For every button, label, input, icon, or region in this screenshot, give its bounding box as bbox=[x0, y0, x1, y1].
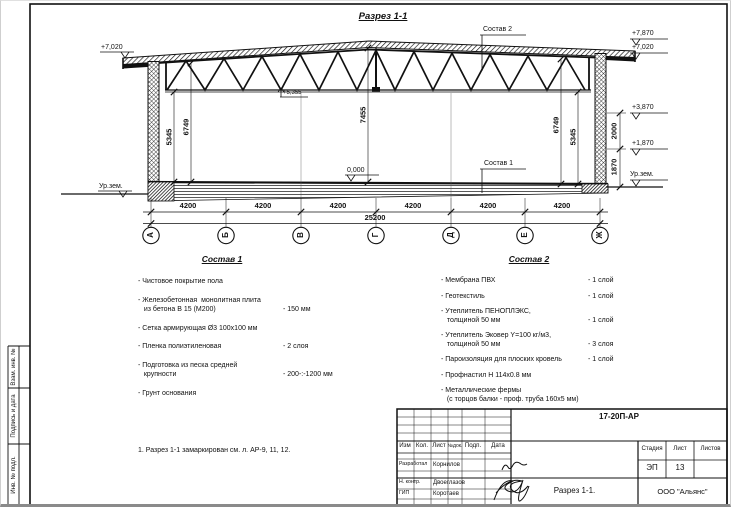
elev-right-2: +7,020 bbox=[632, 44, 654, 51]
signature-kornilov bbox=[502, 462, 527, 470]
sostav2-leader-label: Состав 2 bbox=[483, 26, 512, 33]
list-item: - Профнастил Н 114х0.8 мм bbox=[441, 372, 616, 381]
axis-d: Д bbox=[447, 232, 455, 238]
stamp-stage-label: Стадия bbox=[641, 446, 662, 452]
dim-bay-5: 4200 bbox=[480, 202, 497, 210]
left-wall bbox=[148, 62, 159, 195]
stamp-col-list: Лист bbox=[432, 443, 445, 449]
stamp-name-dvoeglazov: Двоеглазов bbox=[433, 480, 465, 486]
axis-zh: Ж bbox=[596, 231, 604, 238]
dim-left-outer: 6749 bbox=[182, 119, 190, 136]
dim-bay-6: 4200 bbox=[554, 202, 571, 210]
dim-bay-4: 4200 bbox=[405, 202, 422, 210]
list-item: - Мембрана ПВХ- 1 слой bbox=[441, 277, 616, 286]
stamp-col-data: Дата bbox=[491, 443, 505, 449]
list-item: - Геотекстиль- 1 слой bbox=[441, 293, 616, 302]
list-item: - Железобетонная монолитная плита из бет… bbox=[138, 296, 313, 315]
sostav1-list: - Чистовое покрытие пола - Железобетонна… bbox=[138, 277, 313, 407]
list-item: - Утеплитель Эковер Y=100 кг/м3, толщино… bbox=[441, 332, 616, 349]
sostav1-title: Состав 1 bbox=[202, 255, 243, 264]
elev-floor: 0,000 bbox=[347, 167, 365, 174]
elev-right-ground: Ур.зем. bbox=[630, 171, 654, 178]
stamp-doc-code: 17-20П-АР bbox=[599, 413, 639, 421]
stamp-col-podp: Подп. bbox=[465, 443, 481, 449]
list-item: - Утеплитель ПЕНОПЛЭКС, толщиной 50 мм- … bbox=[441, 308, 616, 325]
right-wall bbox=[595, 54, 606, 188]
drawing-sheet: Разрез 1-1 Состав 2 Состав 1 +7,020 Ур.з… bbox=[0, 0, 731, 507]
sheet-linework bbox=[1, 1, 731, 507]
stamp-name-kornilov: Корнилов bbox=[433, 462, 460, 468]
stamp-stage-value: ЭП bbox=[646, 464, 658, 472]
list-item: - Пароизоляция для плоских кровель- 1 сл… bbox=[441, 356, 616, 365]
elev-bottom-chord: +5,355 bbox=[283, 90, 302, 96]
stamp-name-korotaev: Коротаев bbox=[433, 491, 459, 497]
strip-podpis-data: Подпись и дата bbox=[11, 394, 17, 437]
dim-left-inner: 5345 bbox=[165, 129, 173, 146]
list-item: - Подготовка из песка средней крупности-… bbox=[138, 361, 313, 380]
dim-bay-1: 4200 bbox=[180, 202, 197, 210]
dim-bay-2: 4200 bbox=[255, 202, 272, 210]
stamp-role-razrabotal: Разработал bbox=[399, 462, 427, 467]
dim-mid: 7455 bbox=[359, 107, 367, 124]
list-item: - Чистовое покрытие пола bbox=[138, 277, 313, 287]
elev-right-3: +3,870 bbox=[632, 104, 654, 111]
sostav2-list: - Мембрана ПВХ- 1 слой - Геотекстиль- 1 … bbox=[441, 277, 616, 411]
elev-right-1: +7,870 bbox=[632, 30, 654, 37]
list-item: - Сетка армирующая Ø3 100х100 мм bbox=[138, 324, 313, 334]
stamp-sheets-label: Листов bbox=[700, 446, 720, 452]
elev-left-top: +7,020 bbox=[101, 44, 123, 51]
list-item: - Металлические фермы (с торцов балки - … bbox=[441, 387, 616, 404]
dim-bay-3: 4200 bbox=[330, 202, 347, 210]
dim-right-lower: 1870 bbox=[610, 159, 618, 176]
list-item: - Пленка полиэтиленовая- 2 слоя bbox=[138, 342, 313, 352]
elev-left-ground: Ур.зем. bbox=[99, 183, 123, 190]
axis-g: Г bbox=[372, 233, 380, 238]
axis-e: Е bbox=[521, 232, 529, 237]
stamp-col-izm: Изм bbox=[399, 443, 411, 449]
stamp-drawing-title: Разрез 1-1. bbox=[554, 487, 596, 495]
list-item: - Грунт основания bbox=[138, 389, 313, 399]
stamp-company: ООО "Альянс" bbox=[657, 488, 707, 496]
sostav2-title: Состав 2 bbox=[509, 255, 550, 264]
dim-total: 25200 bbox=[365, 214, 386, 222]
dim-right-outer: 6749 bbox=[552, 117, 560, 134]
axis-b: Б bbox=[222, 232, 230, 238]
stamp-sheet-label: Лист bbox=[673, 446, 686, 452]
sheet-frame-lines bbox=[8, 4, 727, 505]
strip-inv-podl: Инв. № подл. bbox=[11, 456, 17, 493]
stamp-role-nkontr: Н. контр. bbox=[399, 480, 420, 485]
axis-a: А bbox=[147, 232, 155, 238]
section-title: Разрез 1-1 bbox=[359, 12, 408, 22]
sostav1-leader-label: Состав 1 bbox=[484, 160, 513, 167]
dim-right-upper: 2000 bbox=[610, 123, 618, 140]
strip-vzam-inv: Взам. инв. № bbox=[11, 348, 17, 385]
stamp-col-ndok: №док. bbox=[448, 444, 463, 449]
dim-right-inner: 5345 bbox=[569, 129, 577, 146]
stamp-sheet-value: 13 bbox=[676, 464, 685, 472]
floor-slab bbox=[148, 182, 608, 201]
stamp-col-kol: Кол. bbox=[416, 443, 428, 449]
stamp-role-gip: ГИП bbox=[399, 491, 409, 496]
elev-right-4: +1,870 bbox=[632, 140, 654, 147]
drawing-note: 1. Разрез 1-1 замаркирован см. л. АР-9, … bbox=[138, 447, 290, 454]
axis-v: В bbox=[297, 232, 305, 238]
